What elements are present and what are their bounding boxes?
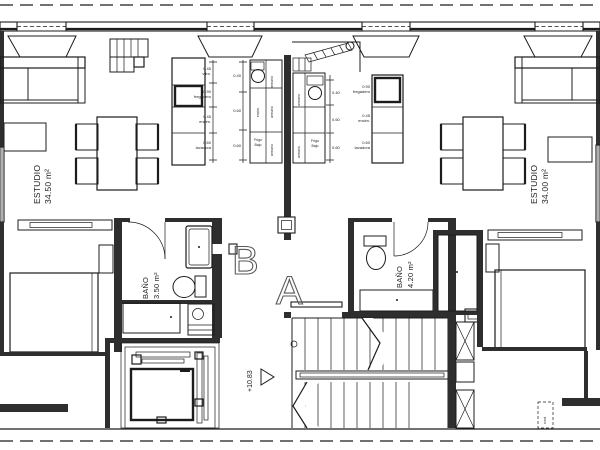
svg-text:armario: armario — [270, 76, 274, 88]
sofa-a — [515, 57, 600, 103]
elevator-counterweight — [204, 356, 208, 420]
door-swing-b-bath — [128, 222, 165, 259]
level-value: +10.83 — [247, 370, 254, 392]
sofa-b — [0, 57, 85, 103]
elevator — [121, 343, 219, 428]
dining-chair — [503, 124, 525, 150]
vent-shaft-x-box — [456, 322, 474, 360]
dining-chair — [136, 124, 158, 150]
svg-text:lavadora: lavadora — [355, 145, 371, 150]
vent-duct-label: v.ext — [543, 417, 547, 424]
svg-text:0.60: 0.60 — [332, 117, 341, 122]
elevator-motor — [132, 355, 141, 364]
facade-piers — [0, 22, 600, 31]
headboard-shelf-b — [18, 220, 112, 230]
coffee-table-b — [4, 123, 46, 151]
appliance-column-b: armario armario armario encim. Frigo Baj… — [250, 60, 282, 163]
svg-text:encim.: encim. — [358, 118, 370, 123]
staircase — [291, 318, 448, 428]
facade-duct-unit — [292, 42, 360, 72]
vanity-zone-b — [105, 303, 220, 428]
stair-treads-lower — [305, 382, 409, 428]
room-label-b: ESTUDIO 34.50 m² — [32, 165, 53, 204]
svg-text:0.60: 0.60 — [332, 145, 341, 150]
level-mark: +10.83 — [247, 369, 274, 392]
vent-duct-box: v.ext — [538, 402, 553, 428]
floor-plan: ESTUDIO 34.50 m² 0.45 vitro. 0.90 fregad… — [0, 0, 600, 450]
bed-b — [10, 273, 98, 352]
bath-name-a: BAÑO — [395, 266, 404, 288]
svg-text:0.60: 0.60 — [233, 143, 242, 148]
party-wall-spine — [284, 55, 291, 240]
nightstand-a — [486, 244, 499, 272]
kitchen-b: 0.45 vitro. 0.90 fregadero 0.45 encim. 0… — [172, 58, 282, 165]
dining-chair — [136, 158, 158, 184]
unit-letter-a: A — [276, 269, 303, 313]
dining-chair — [76, 158, 98, 184]
dining-chair — [503, 158, 525, 184]
svg-text:Bajo: Bajo — [311, 144, 318, 148]
window-bay-splays — [8, 36, 592, 57]
room-label-a: ESTUDIO 34.00 m² — [529, 165, 550, 204]
floor-plan-canvas: ESTUDIO 34.50 m² 0.45 vitro. 0.90 fregad… — [0, 0, 600, 450]
coffee-table-a — [548, 137, 592, 162]
room-name-a: ESTUDIO — [529, 165, 539, 204]
room-name-b: ESTUDIO — [32, 165, 42, 204]
dining-chair — [441, 124, 463, 150]
bed-a — [495, 270, 585, 350]
svg-text:armario: armario — [270, 144, 274, 156]
headboard-shelf-a — [488, 230, 582, 240]
svg-text:0.40: 0.40 — [332, 90, 341, 95]
washer-drum-a — [309, 87, 322, 100]
svg-text:Frigo: Frigo — [311, 139, 319, 143]
bath-area-a: 4.20 m² — [406, 261, 415, 288]
bath-name-b: BAÑO — [141, 277, 150, 299]
elevator-guide-rail — [197, 353, 202, 423]
kitchen-tall-cabinet-a — [372, 75, 403, 163]
elevator-cab — [131, 369, 193, 420]
vent-shafts — [448, 218, 481, 428]
appliance-column-a: armario armario Frigo Bajo — [293, 73, 325, 163]
dining-chair — [76, 124, 98, 150]
bath-area-b: 3.50 m² — [152, 272, 161, 299]
svg-text:armario: armario — [297, 94, 301, 106]
svg-text:armario: armario — [270, 106, 274, 118]
wardrobe-a — [433, 230, 483, 347]
washer-drum-b — [252, 70, 265, 83]
level-triangle-icon — [261, 369, 274, 385]
duct-shaft-square — [278, 217, 295, 233]
svg-text:Bajo: Bajo — [254, 143, 261, 147]
svg-text:fregadero: fregadero — [353, 89, 371, 94]
bathroom-b: BAÑO 3.50 m² — [114, 218, 222, 352]
svg-text:vitro.: vitro. — [202, 71, 211, 76]
nightstand-b — [99, 245, 113, 273]
unit-letter-b: B — [232, 239, 259, 283]
vent-rack-b — [110, 39, 148, 72]
svg-text:lavadora: lavadora — [196, 145, 212, 150]
svg-text:encim.: encim. — [256, 107, 260, 117]
dining-chair — [441, 158, 463, 184]
dining-set-a — [441, 117, 525, 190]
stair-landing-rail — [296, 371, 448, 379]
bed-zone-a — [482, 230, 587, 351]
svg-text:armario: armario — [297, 146, 301, 158]
svg-text:0.60: 0.60 — [233, 108, 242, 113]
dining-table-b — [97, 117, 137, 190]
vent-shaft-x-box — [456, 390, 474, 428]
vanity-counter-b — [123, 303, 180, 333]
dining-set-b — [76, 117, 158, 190]
svg-text:0.40: 0.40 — [233, 73, 242, 78]
bed-zone-b — [0, 220, 113, 356]
svg-text:fregadero: fregadero — [194, 94, 212, 99]
washbasin-unit-b — [188, 304, 214, 335]
door-swing-a-bath — [394, 222, 428, 256]
toilet-b — [173, 276, 206, 298]
svg-text:encim.: encim. — [199, 119, 211, 124]
kitchen-a: armario armario Frigo Bajo 0.40 0.60 0.6… — [293, 73, 403, 163]
dining-table-a — [463, 117, 503, 190]
toilet-a — [364, 236, 386, 270]
room-area-b: 34.50 m² — [43, 169, 53, 204]
fridge-a — [375, 78, 400, 102]
room-area-a: 34.00 m² — [540, 169, 550, 204]
svg-text:Frigo: Frigo — [254, 138, 262, 142]
